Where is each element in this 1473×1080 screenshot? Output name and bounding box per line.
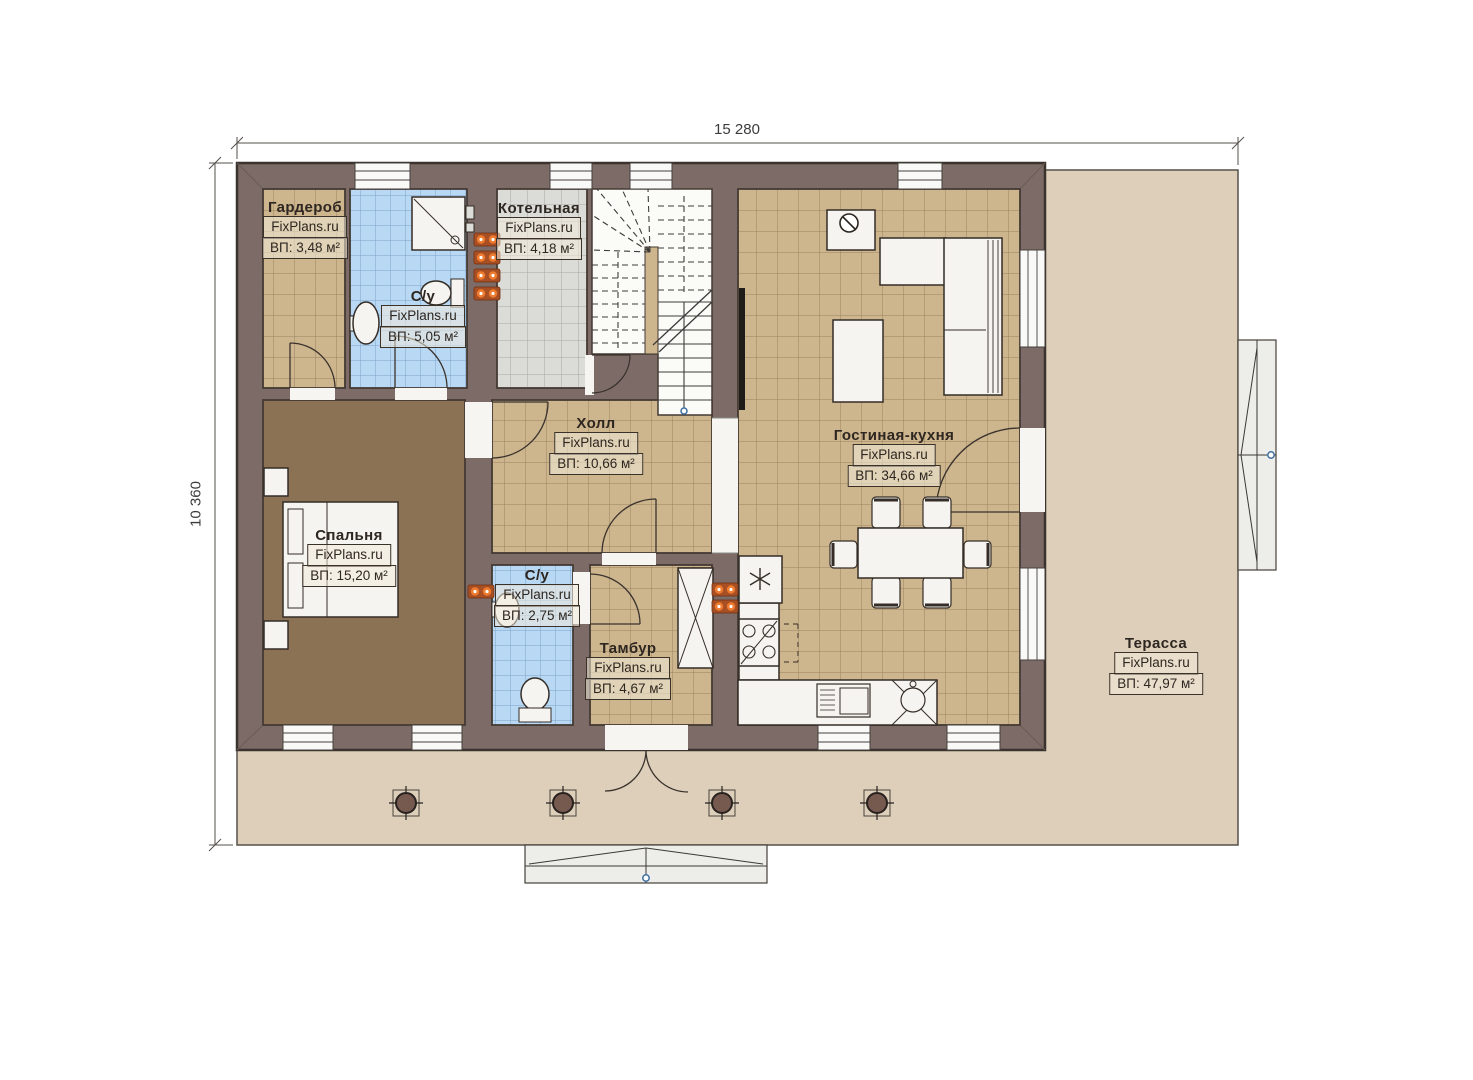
dining-chair <box>964 541 991 568</box>
window <box>283 725 333 750</box>
dining-chair <box>923 497 951 528</box>
floor-plan-drawing <box>0 0 1473 1080</box>
radiator-icon <box>712 600 738 613</box>
window <box>550 163 592 189</box>
dining-chair <box>872 497 900 528</box>
toilet <box>519 678 551 722</box>
window <box>818 725 870 750</box>
radiator-icon <box>474 251 500 264</box>
floor-wardrobe <box>263 189 345 388</box>
dining-table <box>858 528 963 578</box>
entrance-steps <box>525 845 767 883</box>
nightstand <box>264 468 288 496</box>
window <box>1020 568 1045 660</box>
floor-hall <box>492 400 712 553</box>
coffee-table <box>833 320 883 402</box>
floor-plan-page: 15 280 10 360 Гардероб FixPlans.ru ВП: 3… <box>0 0 1473 1080</box>
closet <box>678 568 713 668</box>
dining-chair <box>872 577 900 608</box>
shower <box>412 197 474 250</box>
window <box>898 163 942 189</box>
radiator-icon <box>474 287 500 300</box>
floor-boiler <box>497 189 587 388</box>
window <box>630 163 672 189</box>
radiator-icon <box>474 269 500 282</box>
radiator-icon <box>474 233 500 246</box>
radiator-icon <box>468 585 494 598</box>
window <box>355 163 410 189</box>
terrace-steps-right <box>1238 340 1276 570</box>
nightstand <box>264 621 288 649</box>
toilet <box>421 279 464 307</box>
dining-chair <box>830 541 857 568</box>
radiator-icon <box>712 583 738 596</box>
dining-chair <box>923 577 951 608</box>
window <box>947 725 1000 750</box>
tv <box>739 288 745 410</box>
dishwasher <box>817 684 870 717</box>
passage-hall-living <box>712 418 738 553</box>
dimension-width: 15 280 <box>714 121 760 138</box>
bed <box>283 502 398 617</box>
window <box>1020 250 1045 347</box>
dimension-height: 10 360 <box>188 481 205 527</box>
fridge <box>739 556 782 603</box>
boiler-unit <box>827 210 875 250</box>
window <box>412 725 462 750</box>
